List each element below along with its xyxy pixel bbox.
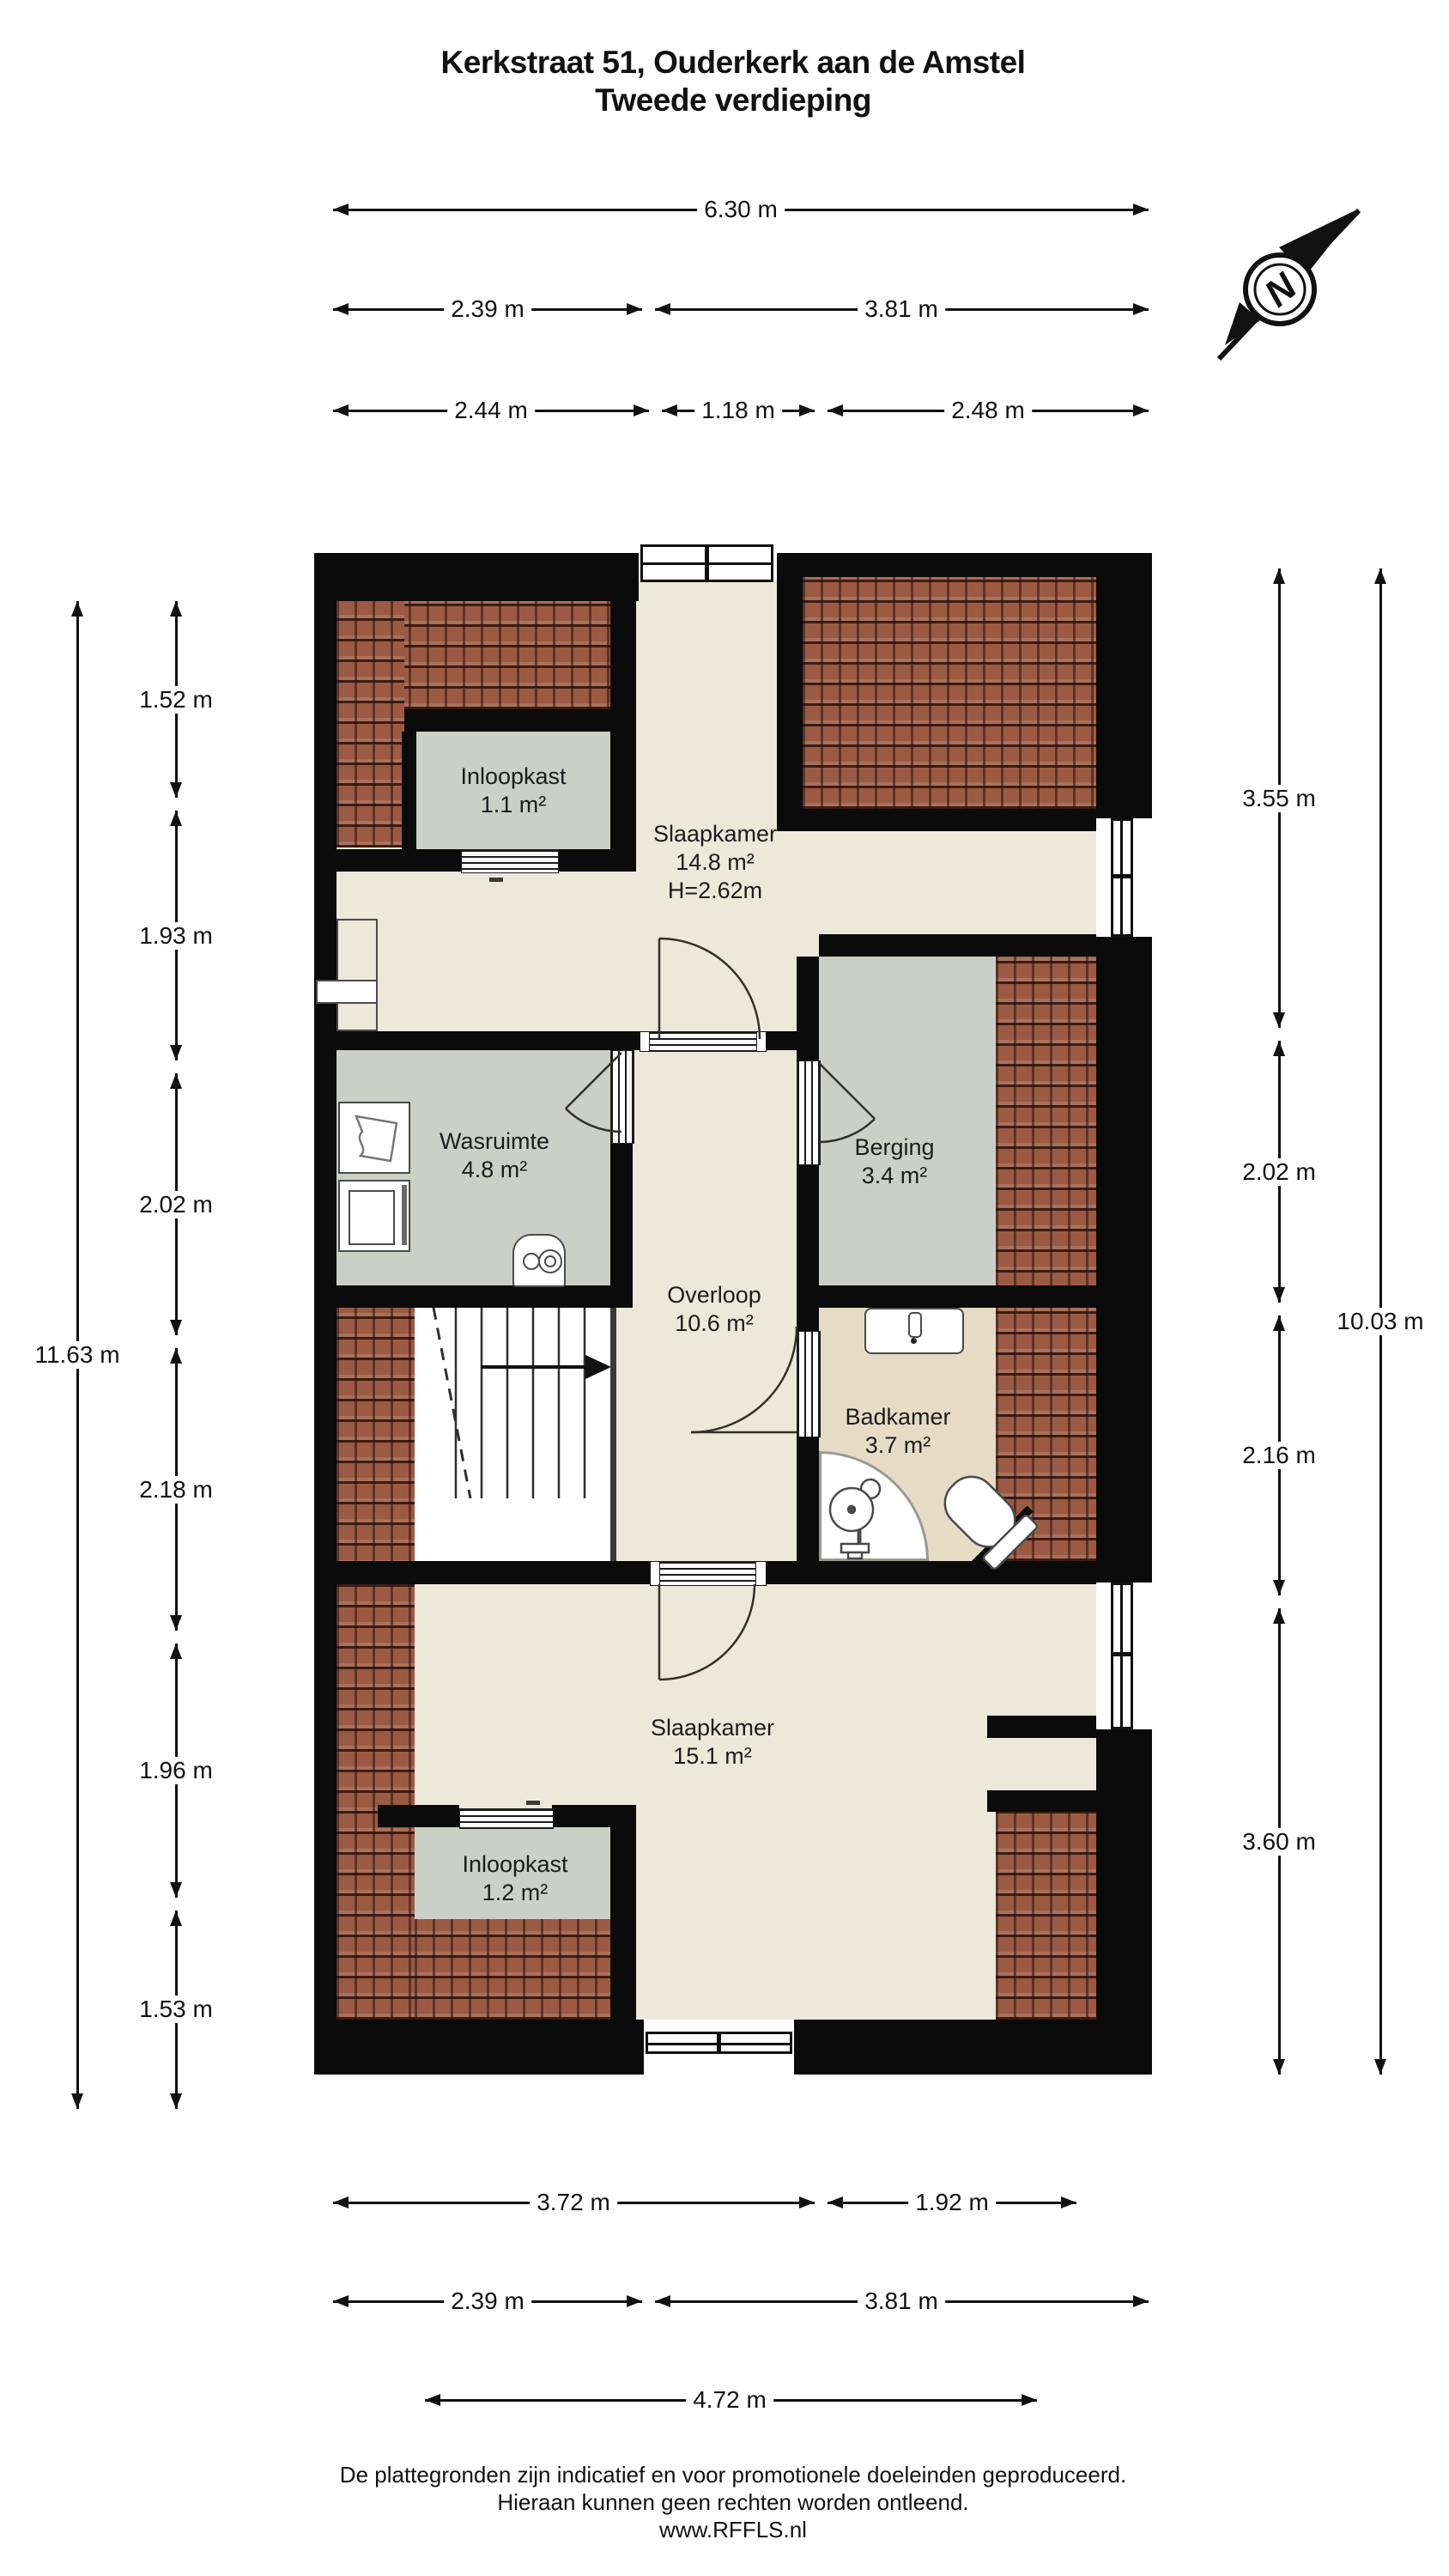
plan-linework: N xyxy=(0,0,1449,2576)
door-arc-badkamer xyxy=(691,1327,797,1432)
door-arc-wasruimte xyxy=(566,1053,621,1132)
footer-disclaimer-1: De plattegronden zijn indicatief en voor… xyxy=(340,2462,1126,2488)
door-arc-slaapkamer2 xyxy=(659,1584,755,1680)
footer-disclaimer-2: Hieraan kunnen geen rechten worden ontle… xyxy=(497,2489,968,2516)
laundry-basket-icon xyxy=(356,1116,397,1161)
door-arc-slaapkamer1 xyxy=(659,939,760,1039)
compass: N xyxy=(1219,209,1359,359)
footer-website: www.RFFLS.nl xyxy=(659,2517,807,2543)
stairs-treads xyxy=(456,1308,585,1498)
toilet-icon xyxy=(931,1463,1038,1570)
shower-head-icon xyxy=(830,1479,880,1558)
stairs-break-line xyxy=(433,1308,470,1498)
door-arc-berging xyxy=(819,1063,875,1142)
floorplan-page: Kerkstraat 51, Ouderkerk aan de Amstel T… xyxy=(0,0,1449,2576)
stairs-direction-arrow xyxy=(481,1355,611,1379)
